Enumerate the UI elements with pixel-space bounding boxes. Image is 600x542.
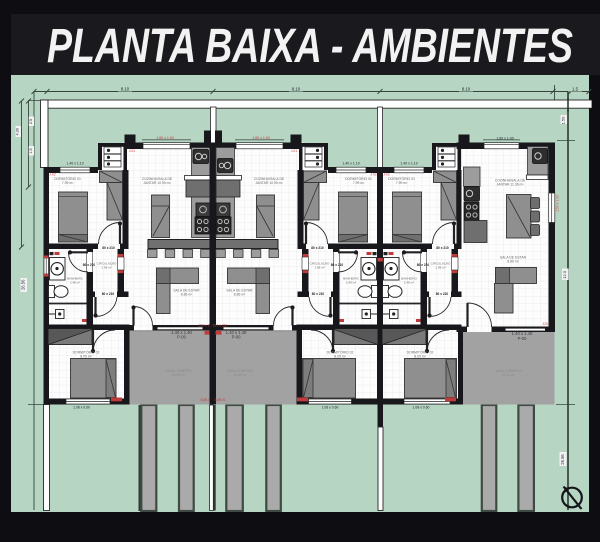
svg-text:1.60 x 1.00: 1.60 x 1.00 <box>156 136 173 140</box>
svg-text:J-01: J-01 <box>129 149 135 153</box>
svg-text:1.98 m²: 1.98 m² <box>314 265 324 269</box>
svg-text:7.99 m²: 7.99 m² <box>396 181 408 185</box>
svg-text:8.05 m²: 8.05 m² <box>334 355 346 359</box>
svg-text:4.30: 4.30 <box>16 128 20 135</box>
svg-text:7.99 m²: 7.99 m² <box>353 181 365 185</box>
svg-text:J-02: J-02 <box>370 173 376 177</box>
svg-text:2.48 m²: 2.48 m² <box>404 280 414 284</box>
svg-text:220: 220 <box>542 322 548 326</box>
svg-text:1.98 m²: 1.98 m² <box>101 265 111 269</box>
svg-text:1.98 m²: 1.98 m² <box>435 265 445 269</box>
svg-text:1.5: 1.5 <box>572 86 578 91</box>
svg-text:80 x 210: 80 x 210 <box>311 246 324 250</box>
svg-text:8.10: 8.10 <box>462 86 471 91</box>
svg-text:12.60 m²: 12.60 m² <box>233 373 247 377</box>
svg-text:P-00: P-00 <box>518 336 528 341</box>
svg-text:2.5: 2.5 <box>29 119 33 124</box>
svg-text:P-00: P-00 <box>177 335 187 340</box>
svg-text:26.56: 26.56 <box>21 279 26 290</box>
svg-text:JANTAR 11.36 m²: JANTAR 11.36 m² <box>496 183 524 187</box>
svg-text:7.99 m²: 7.99 m² <box>62 181 74 185</box>
svg-text:GAR-01: GAR-01 <box>214 398 226 402</box>
svg-text:80 x 210: 80 x 210 <box>331 263 344 267</box>
svg-text:1.08 x 0.60: 1.08 x 0.60 <box>322 406 339 410</box>
svg-text:1.40 x 1.10: 1.40 x 1.10 <box>342 162 359 166</box>
svg-text:1.08 x 0.60: 1.08 x 0.60 <box>73 406 90 410</box>
svg-text:1.5: 1.5 <box>29 148 33 153</box>
svg-text:12.60 m²: 12.60 m² <box>172 373 186 377</box>
svg-text:80 x 210: 80 x 210 <box>417 263 430 267</box>
svg-text:8.86 m²: 8.86 m² <box>234 293 246 297</box>
svg-text:1.60 x 1.00: 1.60 x 1.00 <box>496 137 513 141</box>
svg-text:8.86 m²: 8.86 m² <box>181 293 193 297</box>
svg-text:8.86 m²: 8.86 m² <box>507 260 519 264</box>
svg-text:1.60 x 1.00: 1.60 x 1.00 <box>252 136 269 140</box>
svg-text:1.08 x 0.60: 1.08 x 0.60 <box>413 406 430 410</box>
svg-text:1.50 x 1.00: 1.50 x 1.00 <box>556 195 560 212</box>
svg-text:80 x 210: 80 x 210 <box>312 292 325 296</box>
svg-text:220 x 210: 220 x 210 <box>213 324 228 328</box>
svg-text:1.40 x 1.10: 1.40 x 1.10 <box>66 162 83 166</box>
svg-text:80 x 210: 80 x 210 <box>83 263 96 267</box>
svg-text:80 x 210: 80 x 210 <box>102 246 115 250</box>
svg-text:J-01: J-01 <box>291 149 297 153</box>
svg-text:8.10: 8.10 <box>292 86 301 91</box>
svg-text:8.10: 8.10 <box>121 86 130 91</box>
svg-text:80 x 210: 80 x 210 <box>436 292 449 296</box>
svg-text:12.0: 12.0 <box>562 270 567 279</box>
svg-text:J-02: J-02 <box>383 173 389 177</box>
svg-text:2.48 m²: 2.48 m² <box>346 280 356 284</box>
svg-text:PLANTA BAIXA - AMBIENTES: PLANTA BAIXA - AMBIENTES <box>47 20 573 73</box>
svg-text:2.48 m²: 2.48 m² <box>70 280 80 284</box>
svg-text:1.50: 1.50 <box>561 116 566 125</box>
svg-text:JANTAR 10.95 m²: JANTAR 10.95 m² <box>255 181 283 185</box>
svg-text:8.05 m²: 8.05 m² <box>80 355 92 359</box>
svg-text:26.56: 26.56 <box>560 454 565 465</box>
svg-text:8.05 m²: 8.05 m² <box>414 355 426 359</box>
svg-text:14.20 m²: 14.20 m² <box>502 373 516 377</box>
svg-text:J-02: J-02 <box>49 173 55 177</box>
svg-text:JANTAR 10.95 m²: JANTAR 10.95 m² <box>143 181 171 185</box>
svg-text:80 x 210: 80 x 210 <box>436 246 449 250</box>
svg-text:P-00: P-00 <box>232 335 242 340</box>
svg-text:1.40 x 1.10: 1.40 x 1.10 <box>400 162 417 166</box>
svg-text:80 x 210: 80 x 210 <box>102 292 115 296</box>
